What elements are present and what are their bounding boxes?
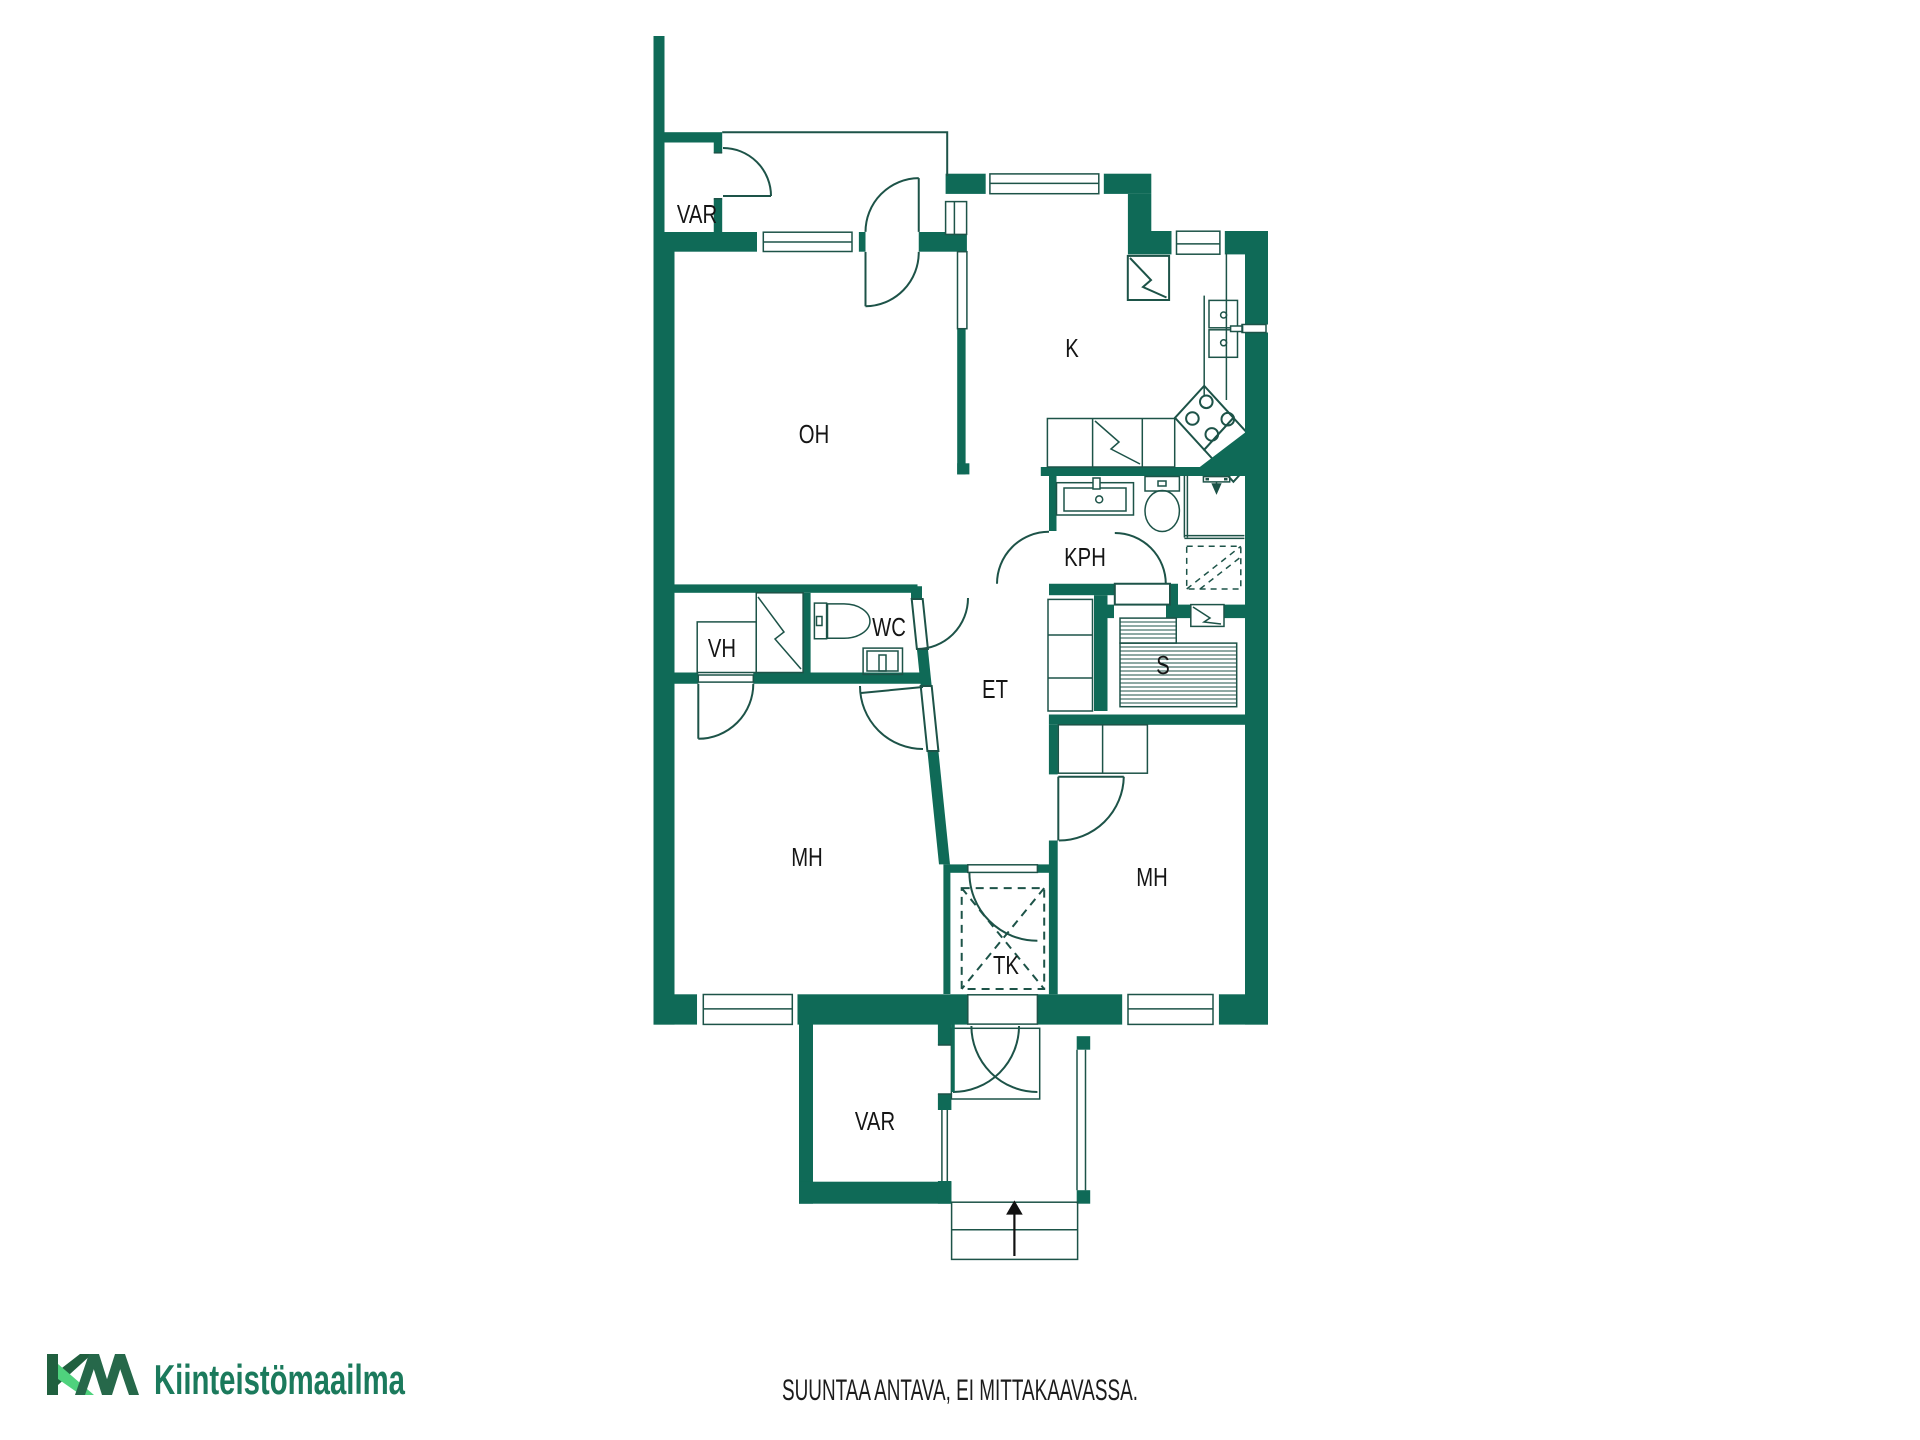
svg-text:K: K bbox=[1065, 334, 1079, 363]
svg-text:VH: VH bbox=[708, 634, 736, 663]
svg-text:OH: OH bbox=[799, 420, 829, 449]
svg-text:ET: ET bbox=[982, 675, 1008, 704]
svg-text:MH: MH bbox=[1136, 863, 1168, 892]
svg-text:VAR: VAR bbox=[677, 200, 717, 229]
svg-text:WC: WC bbox=[872, 613, 906, 642]
svg-text:SUUNTAA ANTAVA, EI MITTAKAAVAS: SUUNTAA ANTAVA, EI MITTAKAAVASSA. bbox=[782, 1374, 1138, 1407]
svg-text:VAR: VAR bbox=[855, 1107, 895, 1136]
svg-text:S: S bbox=[1156, 651, 1170, 680]
svg-text:Kiinteistömaailma: Kiinteistömaailma bbox=[154, 1356, 405, 1403]
svg-text:TK: TK bbox=[993, 951, 1019, 980]
svg-text:MH: MH bbox=[791, 843, 823, 872]
svg-text:KPH: KPH bbox=[1064, 543, 1106, 572]
